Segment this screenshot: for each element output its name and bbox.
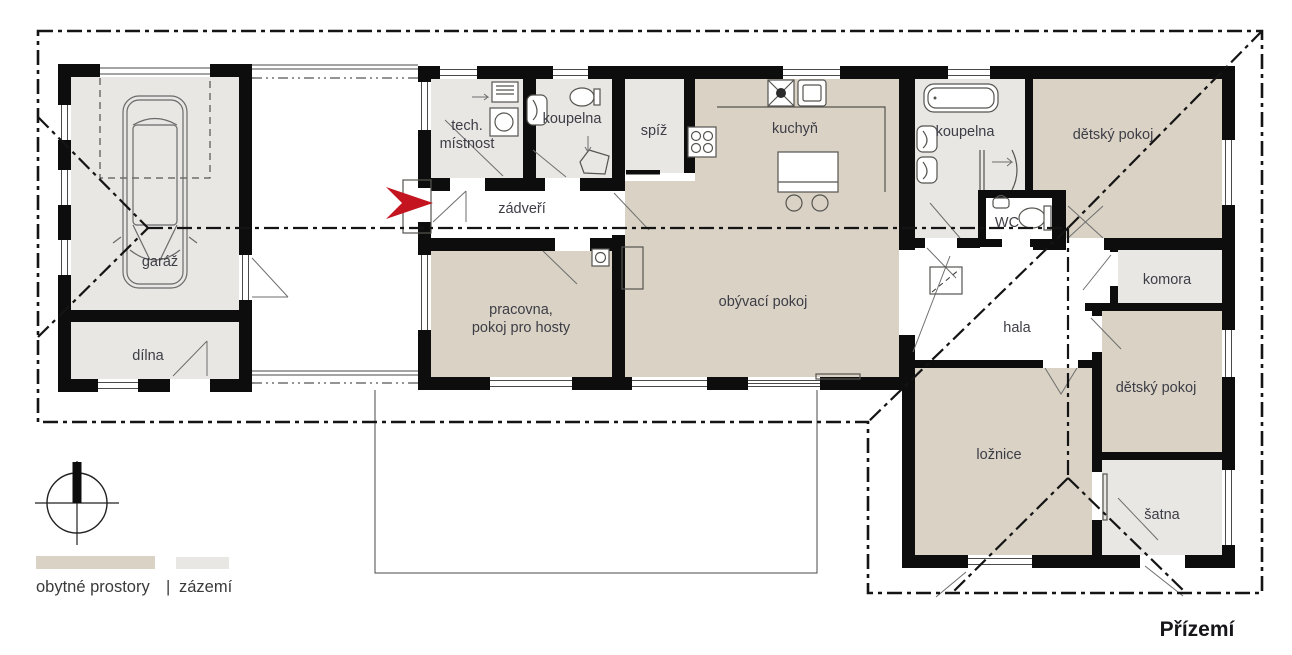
garage-windows-left	[58, 105, 71, 275]
north-compass-icon	[35, 461, 119, 545]
legend-label-utility: zázemí	[179, 578, 233, 596]
washing-machine-icon	[490, 108, 518, 136]
spiz-sliding-door	[626, 170, 660, 175]
label-tech-1: tech.	[451, 118, 482, 134]
label-spiz: spíž	[641, 123, 668, 139]
garage-partition-wall	[71, 310, 239, 322]
label-tech-2: místnost	[440, 136, 495, 152]
label-pracovna-2: pokoj pro hosty	[472, 320, 571, 336]
floor-plan-page: obytné prostory | zázemí garáž dílna tec…	[0, 0, 1292, 655]
garage-building	[58, 64, 288, 392]
terrace-outline	[375, 390, 817, 573]
label-koupelna-big: koupelna	[936, 124, 996, 140]
label-detsky-pokoj-2: dětský pokoj	[1116, 380, 1197, 396]
label-loznice: ložnice	[976, 447, 1021, 463]
legend-separator: |	[166, 578, 170, 596]
legend-swatch-living	[36, 556, 155, 569]
walkway-lines	[252, 65, 418, 383]
kitchen-island	[778, 152, 838, 192]
garage-side-door	[239, 255, 288, 300]
label-koupelna-small: koupelna	[543, 111, 603, 127]
label-detsky-pokoj-1: dětský pokoj	[1073, 127, 1154, 143]
label-komora: komora	[1143, 272, 1192, 288]
label-dilna: dílna	[132, 348, 164, 364]
label-garaz: garáž	[142, 254, 178, 270]
label-satna: šatna	[1144, 507, 1180, 523]
page-title: Přízemí	[1160, 618, 1236, 641]
garage-door	[100, 64, 210, 77]
washbasin-icon	[917, 126, 937, 152]
stove-icon	[688, 127, 716, 157]
label-kuchyn: kuchyň	[772, 121, 818, 137]
kitchen-sink-icon	[798, 80, 826, 106]
dilna-window	[98, 379, 138, 392]
washbasin-icon	[917, 157, 937, 183]
label-wc: WC	[995, 215, 1019, 231]
label-hala: hala	[1003, 320, 1031, 336]
legend-label-living: obytné prostory	[36, 578, 150, 596]
toilet-icon	[570, 88, 600, 106]
label-pracovna-1: pracovna,	[489, 302, 553, 318]
legend-swatch-utility	[176, 557, 229, 569]
label-zadveri: zádveří	[498, 201, 546, 217]
bathtub-icon	[924, 84, 998, 112]
extractor-icon	[768, 80, 794, 106]
legend: obytné prostory | zázemí	[36, 556, 233, 596]
label-obyvaci-pokoj: obývací pokoj	[719, 294, 808, 310]
floor-plan-drawing: obytné prostory | zázemí garáž dílna tec…	[0, 0, 1292, 655]
toilet-icon	[1019, 206, 1051, 230]
fireplace-icon	[592, 249, 609, 266]
